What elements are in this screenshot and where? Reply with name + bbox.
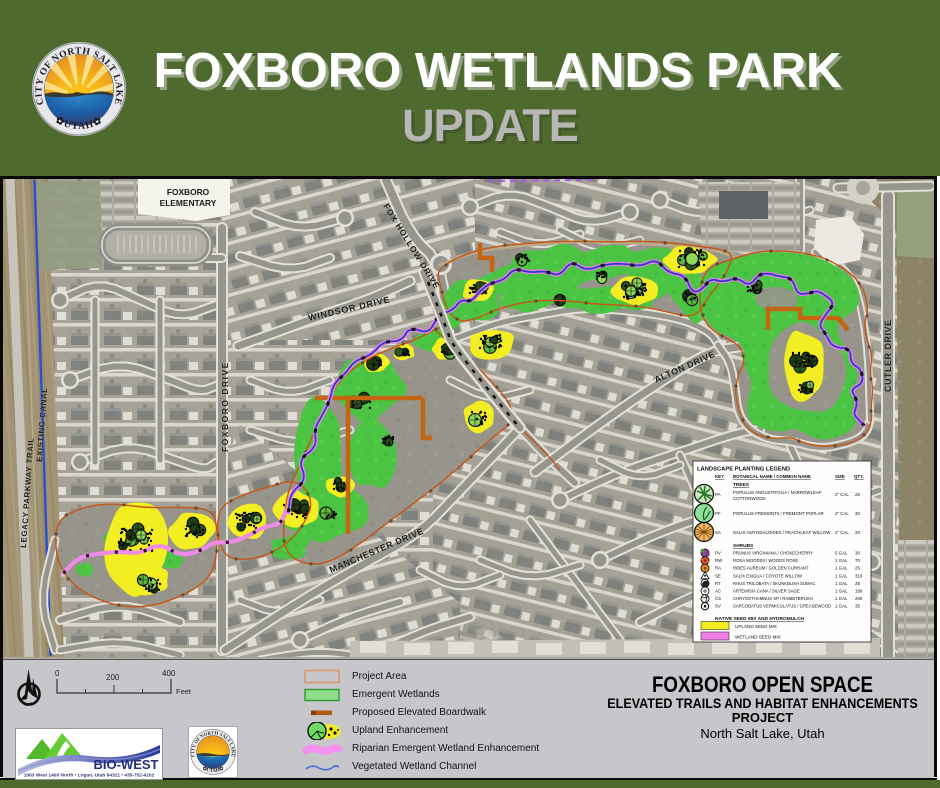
svg-text:WETLAND SEED MIX: WETLAND SEED MIX [735, 635, 781, 640]
svg-text:SHRUBS: SHRUBS [733, 543, 754, 549]
svg-text:RHUS TRILOBATA / SKUNKBUSH SUM: RHUS TRILOBATA / SKUNKBUSH SUMAC [733, 581, 815, 586]
svg-text:QTY.: QTY. [854, 474, 864, 479]
svg-text:2" CAL: 2" CAL [835, 511, 849, 516]
svg-text:PA: PA [715, 492, 721, 497]
svg-text:70: 70 [855, 558, 860, 563]
svg-text:ELEMENTARY: ELEMENTARY [160, 198, 217, 208]
svg-text:PF: PF [715, 511, 721, 516]
svg-text:BOTANICAL NAME / COMMON NAME: BOTANICAL NAME / COMMON NAME [733, 474, 811, 479]
svg-text:1 GAL: 1 GAL [835, 573, 848, 578]
svg-text:1 GAL: 1 GAL [835, 596, 848, 601]
svg-text:BIO-WEST: BIO-WEST [94, 757, 159, 772]
svg-text:Feet: Feet [176, 687, 192, 696]
svg-text:RA: RA [715, 566, 721, 571]
svg-text:1 GAL: 1 GAL [835, 558, 848, 563]
svg-text:200: 200 [106, 673, 120, 682]
svg-text:PRUNUS VIRGINIANA / CHOKECHERR: PRUNUS VIRGINIANA / CHOKECHERRY [733, 551, 813, 556]
svg-text:POPULUS ANGUSTIFOLIA / NARROWL: POPULUS ANGUSTIFOLIA / NARROWLEAF [733, 490, 822, 495]
svg-text:CUTLER DRIVE: CUTLER DRIVE [883, 319, 893, 392]
svg-text:310: 310 [855, 573, 863, 578]
svg-text:30: 30 [855, 551, 860, 556]
svg-text:SA: SA [715, 530, 721, 535]
svg-text:180: 180 [855, 589, 863, 594]
svg-text:SALIX AMYGDALOIDES / PEACHLEAF: SALIX AMYGDALOIDES / PEACHLEAF WILLOW [733, 530, 831, 535]
svg-text:FOXBORO: FOXBORO [167, 187, 210, 197]
svg-text:5 GAL: 5 GAL [835, 551, 848, 556]
svg-text:2" CAL: 2" CAL [835, 530, 849, 535]
svg-text:RIBES AUREUM / GOLDEN CURRANT: RIBES AUREUM / GOLDEN CURRANT [733, 566, 809, 571]
svg-text:NATIVE SEED MIX AND HYDROMULCH: NATIVE SEED MIX AND HYDROMULCH [715, 616, 805, 622]
svg-text:UPLAND SEED MIX: UPLAND SEED MIX [735, 624, 777, 629]
svg-text:25: 25 [855, 581, 860, 586]
svg-text:30: 30 [855, 511, 860, 516]
svg-text:25: 25 [855, 492, 860, 497]
svg-text:20: 20 [855, 530, 860, 535]
svg-text:RT: RT [715, 581, 721, 586]
svg-text:PV: PV [715, 551, 721, 556]
svg-text:LANDSCAPE PLANTING LEGEND: LANDSCAPE PLANTING LEGEND [697, 467, 790, 473]
svg-text:SALIX EXIGUA / COYOTE WILLOW: SALIX EXIGUA / COYOTE WILLOW [733, 573, 802, 578]
svg-text:COTTONWOOD: COTTONWOOD [733, 496, 766, 501]
svg-text:1063 West 1400 North • Logan,: 1063 West 1400 North • Logan, Utah 84321… [24, 773, 155, 779]
svg-text:SARCOBATUS VERMICULATUS / GREA: SARCOBATUS VERMICULATUS / GREASEWOOD [733, 604, 831, 609]
svg-text:SE: SE [715, 573, 721, 578]
svg-text:25: 25 [855, 566, 860, 571]
svg-text:35: 35 [855, 604, 860, 609]
svg-text:TREES: TREES [733, 482, 750, 488]
svg-text:200: 200 [855, 596, 863, 601]
svg-text:KEY: KEY [715, 474, 724, 479]
svg-text:0: 0 [55, 669, 60, 678]
svg-text:1 GAL: 1 GAL [835, 589, 848, 594]
svg-text:RW: RW [715, 558, 723, 563]
svg-text:1 GAL: 1 GAL [835, 566, 848, 571]
svg-text:SIZE: SIZE [835, 474, 845, 479]
svg-text:1 GAL: 1 GAL [835, 581, 848, 586]
svg-text:SV: SV [715, 604, 721, 609]
svg-text:CHRYSOTHAMNUS SP / RABBITBRUSH: CHRYSOTHAMNUS SP / RABBITBRUSH [733, 596, 813, 601]
svg-text:POPULUS FREMONTII / FREMONT PO: POPULUS FREMONTII / FREMONT POPLAR [733, 511, 824, 516]
svg-text:CS: CS [715, 596, 721, 601]
svg-text:ROSA WOODSII / WOODS ROSE: ROSA WOODSII / WOODS ROSE [733, 558, 798, 563]
svg-text:AC: AC [715, 589, 721, 594]
svg-text:2" CAL: 2" CAL [835, 492, 849, 497]
svg-text:1 GAL: 1 GAL [835, 604, 848, 609]
svg-text:400: 400 [162, 669, 176, 678]
svg-text:FOXBORO DRIVE: FOXBORO DRIVE [220, 361, 230, 452]
svg-text:ARTEMISIA CANA / SILVER SAGE: ARTEMISIA CANA / SILVER SAGE [733, 589, 800, 594]
